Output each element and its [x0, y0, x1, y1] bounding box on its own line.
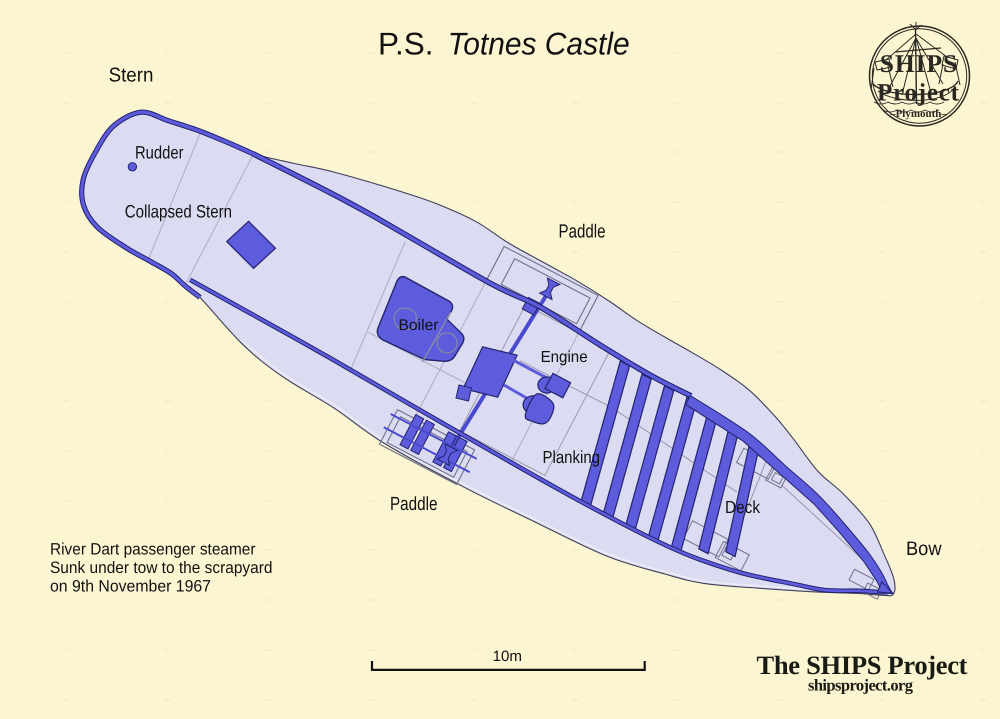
svg-text:SHIPS: SHIPS: [880, 49, 957, 78]
svg-text:Project: Project: [877, 80, 960, 107]
svg-text:–Plymouth–: –Plymouth–: [889, 108, 947, 120]
svg-text:Collapsed Stern: Collapsed Stern: [125, 202, 232, 222]
svg-text:shipsproject.org: shipsproject.org: [808, 676, 914, 695]
svg-text:Totnes Castle: Totnes Castle: [448, 26, 630, 62]
svg-text:Boiler: Boiler: [399, 317, 439, 334]
svg-text:on 9th November 1967: on 9th November 1967: [50, 578, 211, 596]
svg-text:Sunk under tow to the scrapyar: Sunk under tow to the scrapyard: [50, 559, 273, 577]
svg-text:Planking: Planking: [543, 447, 601, 467]
svg-text:Bow: Bow: [906, 538, 942, 560]
svg-text:Deck: Deck: [725, 497, 760, 517]
svg-text:P.S.: P.S.: [378, 26, 433, 62]
svg-text:Paddle: Paddle: [390, 494, 438, 515]
svg-text:Paddle: Paddle: [559, 222, 606, 243]
svg-text:10m: 10m: [493, 648, 522, 665]
svg-text:Engine: Engine: [541, 349, 588, 366]
svg-text:Rudder: Rudder: [135, 143, 184, 163]
svg-text:Stern: Stern: [109, 64, 154, 86]
svg-text:River Dart passenger steamer: River Dart passenger steamer: [50, 541, 256, 559]
